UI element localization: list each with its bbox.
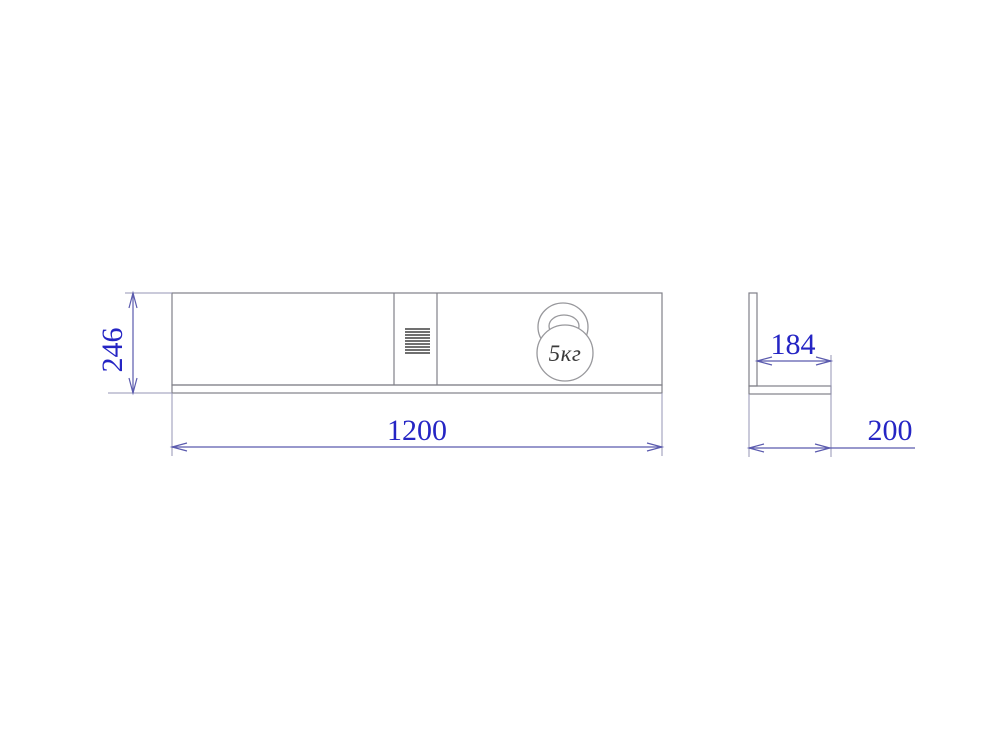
height-dim-label: 246 [96, 328, 129, 373]
front-shelf-edge [172, 385, 662, 393]
inner-depth-dim-label: 184 [771, 328, 816, 361]
max-load-label: 5кг [549, 341, 582, 366]
drawing-canvas: 5кг 246 [0, 0, 1000, 750]
dimension-depth-200: 200 [749, 394, 915, 457]
width-dim-label: 1200 [387, 414, 447, 447]
dimension-inner-depth-184: 184 [757, 328, 831, 457]
side-back-panel [749, 293, 757, 386]
depth-dim-label: 200 [868, 414, 913, 447]
shelf-drawing: 5кг 246 [0, 0, 1000, 750]
dimension-height-246: 246 [96, 293, 172, 393]
mount-slot-hatch-icon [405, 329, 430, 353]
dimension-width-1200: 1200 [172, 393, 662, 456]
side-shelf-board [749, 386, 831, 394]
